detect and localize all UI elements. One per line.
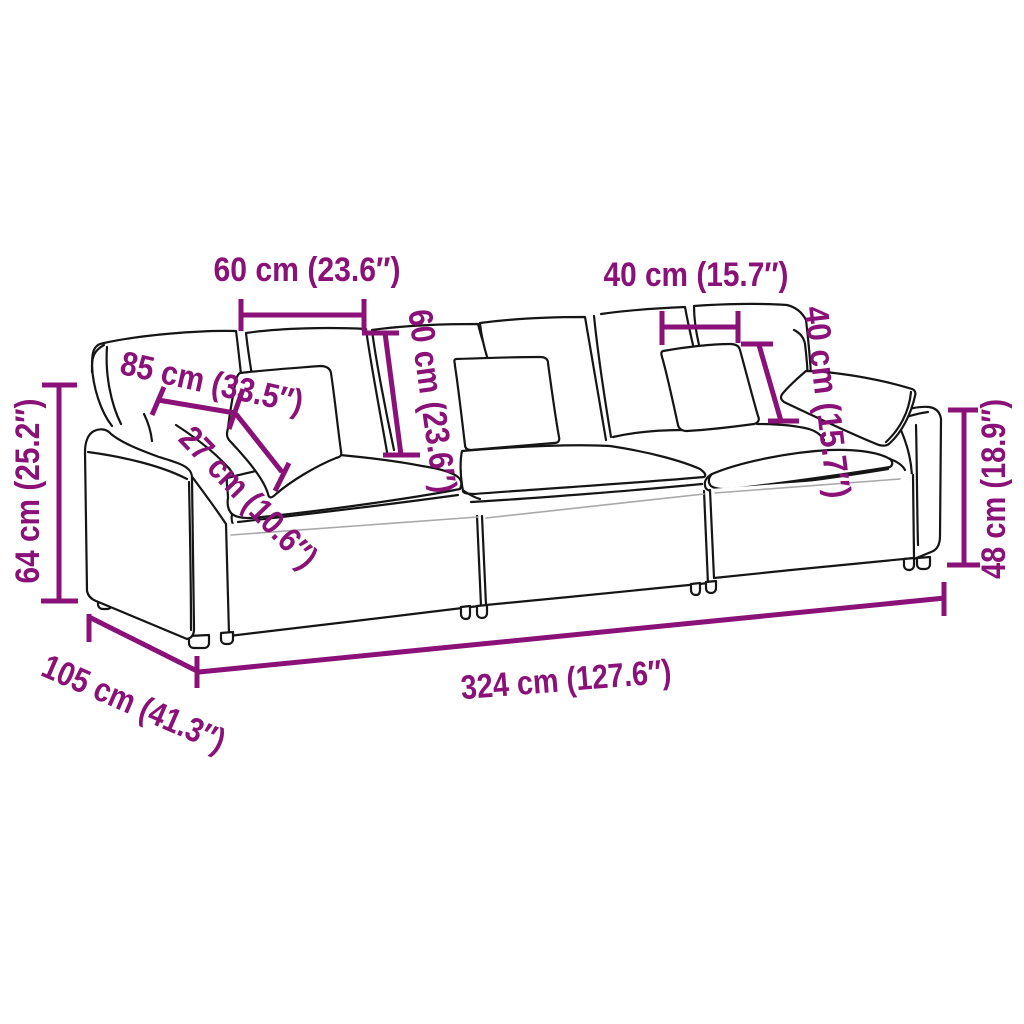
svg-text:64 cm (25.2″): 64 cm (25.2″) <box>9 399 47 584</box>
svg-text:60 cm (23.6″): 60 cm (23.6″) <box>214 251 401 289</box>
svg-text:48 cm (18.9″): 48 cm (18.9″) <box>975 399 1013 579</box>
svg-text:324 cm (127.6″): 324 cm (127.6″) <box>459 653 672 707</box>
svg-text:40 cm (15.7″): 40 cm (15.7″) <box>604 256 789 294</box>
svg-text:105 cm (41.3″): 105 cm (41.3″) <box>36 647 231 760</box>
